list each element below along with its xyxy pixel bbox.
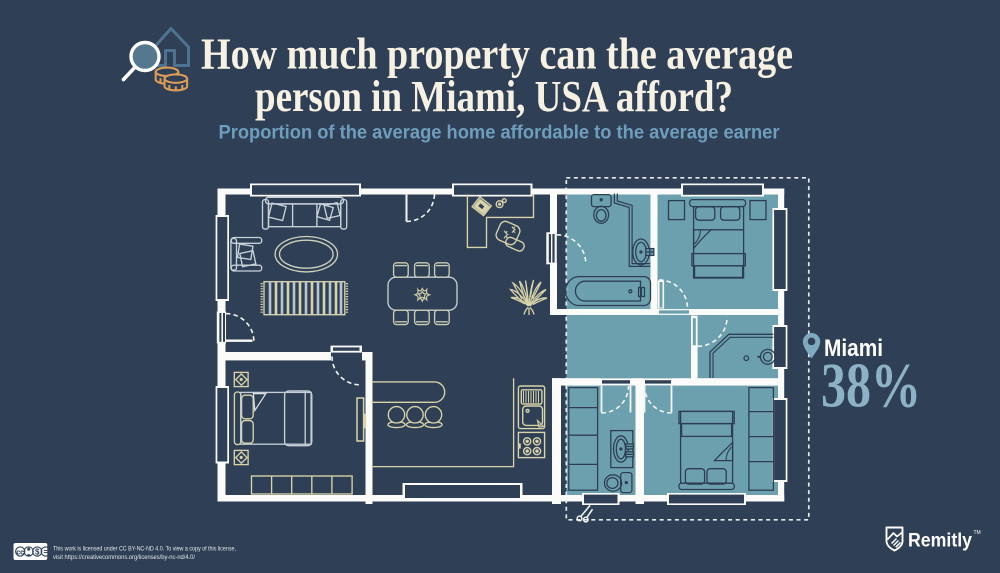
svg-text:38%: 38% bbox=[821, 350, 921, 421]
svg-text:$: $ bbox=[35, 548, 40, 557]
svg-text:This work is licensed under CC: This work is licensed under CC BY-NC-ND … bbox=[53, 546, 236, 553]
svg-text:Remitly: Remitly bbox=[908, 530, 972, 552]
svg-text:visit https://creativecommons.: visit https://creativecommons.org/licens… bbox=[53, 554, 195, 561]
svg-text:cc: cc bbox=[16, 547, 24, 556]
svg-text:=: = bbox=[43, 548, 48, 557]
svg-text:TM: TM bbox=[974, 530, 981, 536]
svg-text:person in Miami, USA afford?: person in Miami, USA afford? bbox=[255, 72, 733, 121]
svg-text:Proportion of the average home: Proportion of the average home affordabl… bbox=[219, 123, 781, 144]
